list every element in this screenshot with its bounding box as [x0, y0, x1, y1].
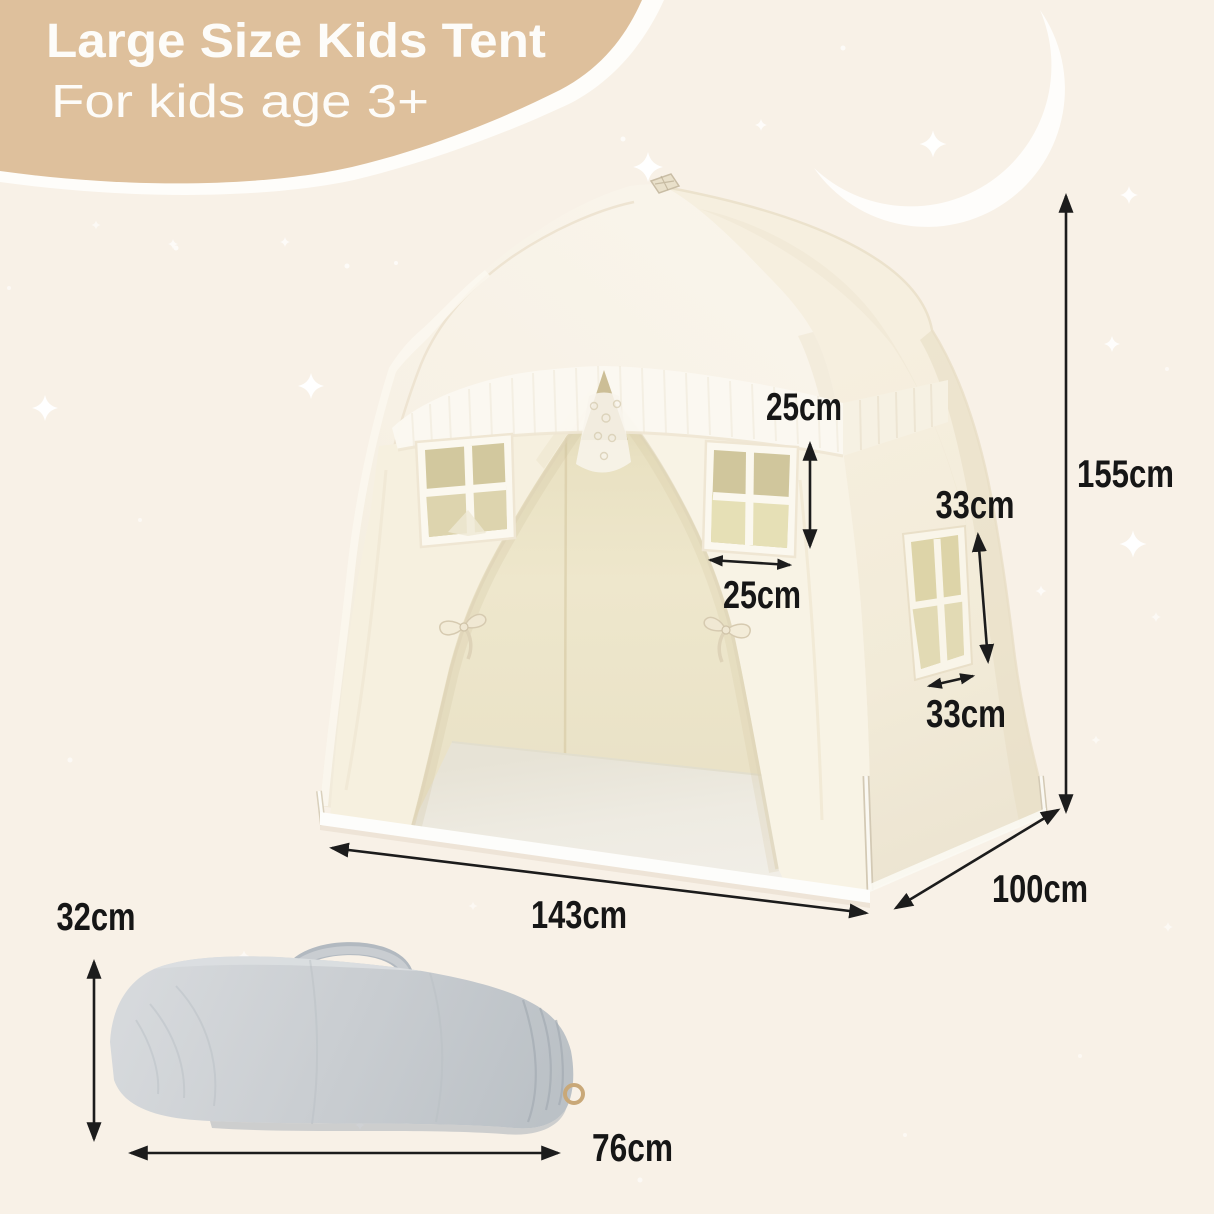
svg-text:For kids age 3+: For kids age 3+: [51, 75, 429, 127]
svg-text:25cm: 25cm: [723, 574, 801, 617]
svg-text:32cm: 32cm: [57, 896, 136, 939]
svg-text:33cm: 33cm: [936, 484, 1015, 527]
svg-text:33cm: 33cm: [926, 693, 1006, 736]
svg-text:76cm: 76cm: [592, 1127, 673, 1170]
svg-text:143cm: 143cm: [531, 894, 627, 937]
svg-text:155cm: 155cm: [1077, 453, 1174, 496]
svg-text:Large Size Kids Tent: Large Size Kids Tent: [46, 15, 546, 68]
svg-text:25cm: 25cm: [766, 386, 842, 429]
svg-text:100cm: 100cm: [992, 868, 1088, 911]
